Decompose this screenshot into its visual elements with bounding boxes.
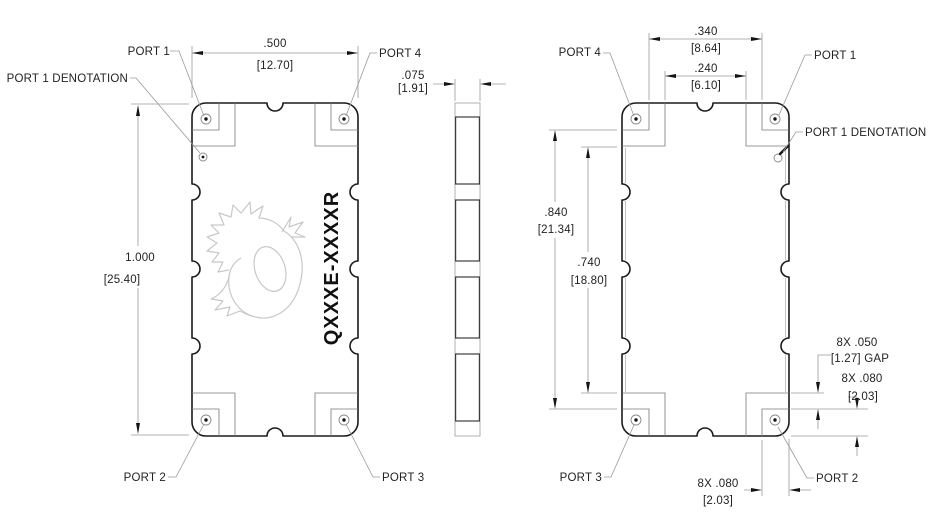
part-number-text: QXXXE-XXXXR <box>321 191 343 345</box>
dim-pad-width-8x: 8X .080 [2.03] <box>697 439 811 507</box>
dim-value-inches: 1.000 <box>125 252 155 264</box>
dim-value-mm: [12.70] <box>257 60 294 72</box>
port1-denotation-label: PORT 1 DENOTATION <box>805 127 926 139</box>
port4-pad-dot <box>342 117 345 120</box>
port1-label: PORT 1 <box>128 46 170 58</box>
dim-pad-height-inner: .740 [18.80] <box>571 147 617 393</box>
dim-value-inches: .740 <box>577 257 600 269</box>
dim-package-width: .500 [12.70] <box>192 38 358 98</box>
port3-pad-dot <box>634 418 637 421</box>
dim-pad-height-8x: 8X .080 [2.03] <box>791 373 883 456</box>
castellation-segment <box>456 354 480 421</box>
dim-value-inches: .075 <box>401 70 424 82</box>
dim-leader-and-stems <box>848 397 857 456</box>
dim-pad-height-outer: .840 [21.34] <box>538 130 617 409</box>
dim-value-mm: [25.40] <box>104 274 141 286</box>
brand-logo <box>207 202 305 318</box>
castellation-segment <box>456 200 480 261</box>
side-castellation-segments <box>456 117 480 421</box>
dim-pad-span-inner: .240 [6.10] <box>665 63 746 100</box>
dim-extension-lines <box>192 46 358 98</box>
port4-label: PORT 4 <box>379 48 422 60</box>
dim-value-inches: 8X .080 <box>697 478 738 490</box>
logo-inner-oval <box>249 242 292 295</box>
dim-extension-lines <box>131 104 189 435</box>
port1-denotation-label: PORT 1 DENOTATION <box>7 73 128 85</box>
dim-value-inches: 8X .050 <box>836 337 877 349</box>
dim-extension-lines <box>455 79 480 101</box>
dim-value-mm: [2.03] <box>848 391 878 403</box>
port4-label: PORT 4 <box>559 47 602 59</box>
castellation-segment <box>456 277 480 338</box>
castellation-segment <box>456 117 480 184</box>
dim-value-inches: .500 <box>263 38 286 50</box>
side-view: .075 [1.91] <box>398 70 506 436</box>
port3-label: PORT 3 <box>560 472 602 484</box>
port1-pad-dot <box>773 117 776 120</box>
side-profile-outline <box>455 103 480 436</box>
drawing-page: QXXXE-XXXXR .500 [12.70] 1.000 [25.40] P… <box>0 0 936 530</box>
dim-value-inches: 8X .080 <box>841 373 882 385</box>
port2-label: PORT 2 <box>816 473 858 485</box>
edge-metallization-lines <box>626 148 786 392</box>
mechanical-drawing-canvas: QXXXE-XXXXR .500 [12.70] 1.000 [25.40] P… <box>0 0 936 530</box>
dim-thickness: .075 [1.91] <box>398 70 506 101</box>
port1-pad-dot <box>204 117 207 120</box>
dim-value-inches: .840 <box>544 207 567 219</box>
port4-pad-dot <box>634 117 637 120</box>
logo-body <box>229 231 302 318</box>
dim-package-height: 1.000 [25.40] <box>104 104 189 435</box>
dim-extension-lines <box>549 130 617 409</box>
port1-denotation-dot <box>202 156 205 159</box>
port2-pad-dot <box>773 418 776 421</box>
dim-extension-lines <box>581 147 617 393</box>
logo-wing <box>282 217 305 237</box>
dim-arrowheads <box>444 82 491 86</box>
port2-label: PORT 2 <box>124 472 166 484</box>
dim-arrowheads <box>816 382 820 420</box>
bottom-view: .340 [8.64] .240 [6.10] .840 [21.34] .74… <box>538 26 927 507</box>
dim-value-mm: [18.80] <box>571 275 608 287</box>
dim-value-mm: [8.64] <box>691 43 721 55</box>
dim-value-mm: [1.91] <box>398 83 428 95</box>
port2-pad-dot <box>204 418 207 421</box>
port1-denotation-marker <box>774 154 782 162</box>
corner-pad-boundaries <box>622 103 789 436</box>
dim-value-mm: [6.10] <box>691 80 721 92</box>
dim-value-mm: [21.34] <box>538 224 575 236</box>
dim-leader-and-stems <box>818 355 831 429</box>
port1-label: PORT 1 <box>814 50 856 62</box>
port3-pad-dot <box>342 418 345 421</box>
logo-flames <box>207 202 284 272</box>
dim-value-inches: .240 <box>694 63 717 75</box>
top-view: QXXXE-XXXXR .500 [12.70] 1.000 [25.40] P… <box>7 38 425 484</box>
dim-extension-lines <box>762 439 789 496</box>
port-pad-markers <box>631 114 788 425</box>
dim-value-mm: [1.27] GAP <box>831 353 889 365</box>
dim-arrowheads <box>855 398 859 447</box>
port3-label: PORT 3 <box>382 472 424 484</box>
package-outline <box>622 103 789 436</box>
dim-value-inches: .340 <box>694 26 717 38</box>
dim-value-mm: [2.03] <box>703 495 733 507</box>
dim-arrowheads <box>751 488 800 492</box>
